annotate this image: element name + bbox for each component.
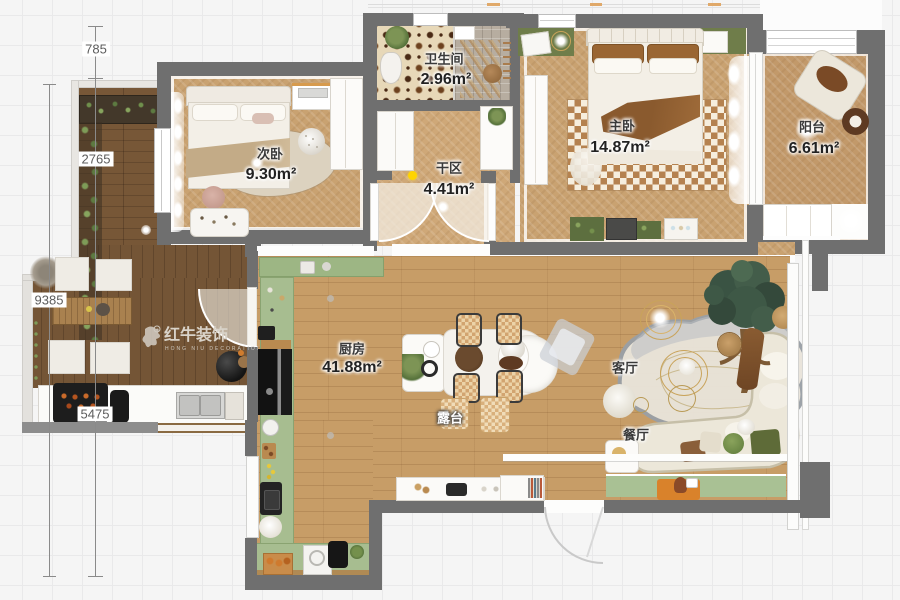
svg-text:红牛装饰: 红牛装饰 — [164, 325, 228, 344]
svg-text:HONG NIU DECORATION: HONG NIU DECORATION — [165, 346, 258, 352]
